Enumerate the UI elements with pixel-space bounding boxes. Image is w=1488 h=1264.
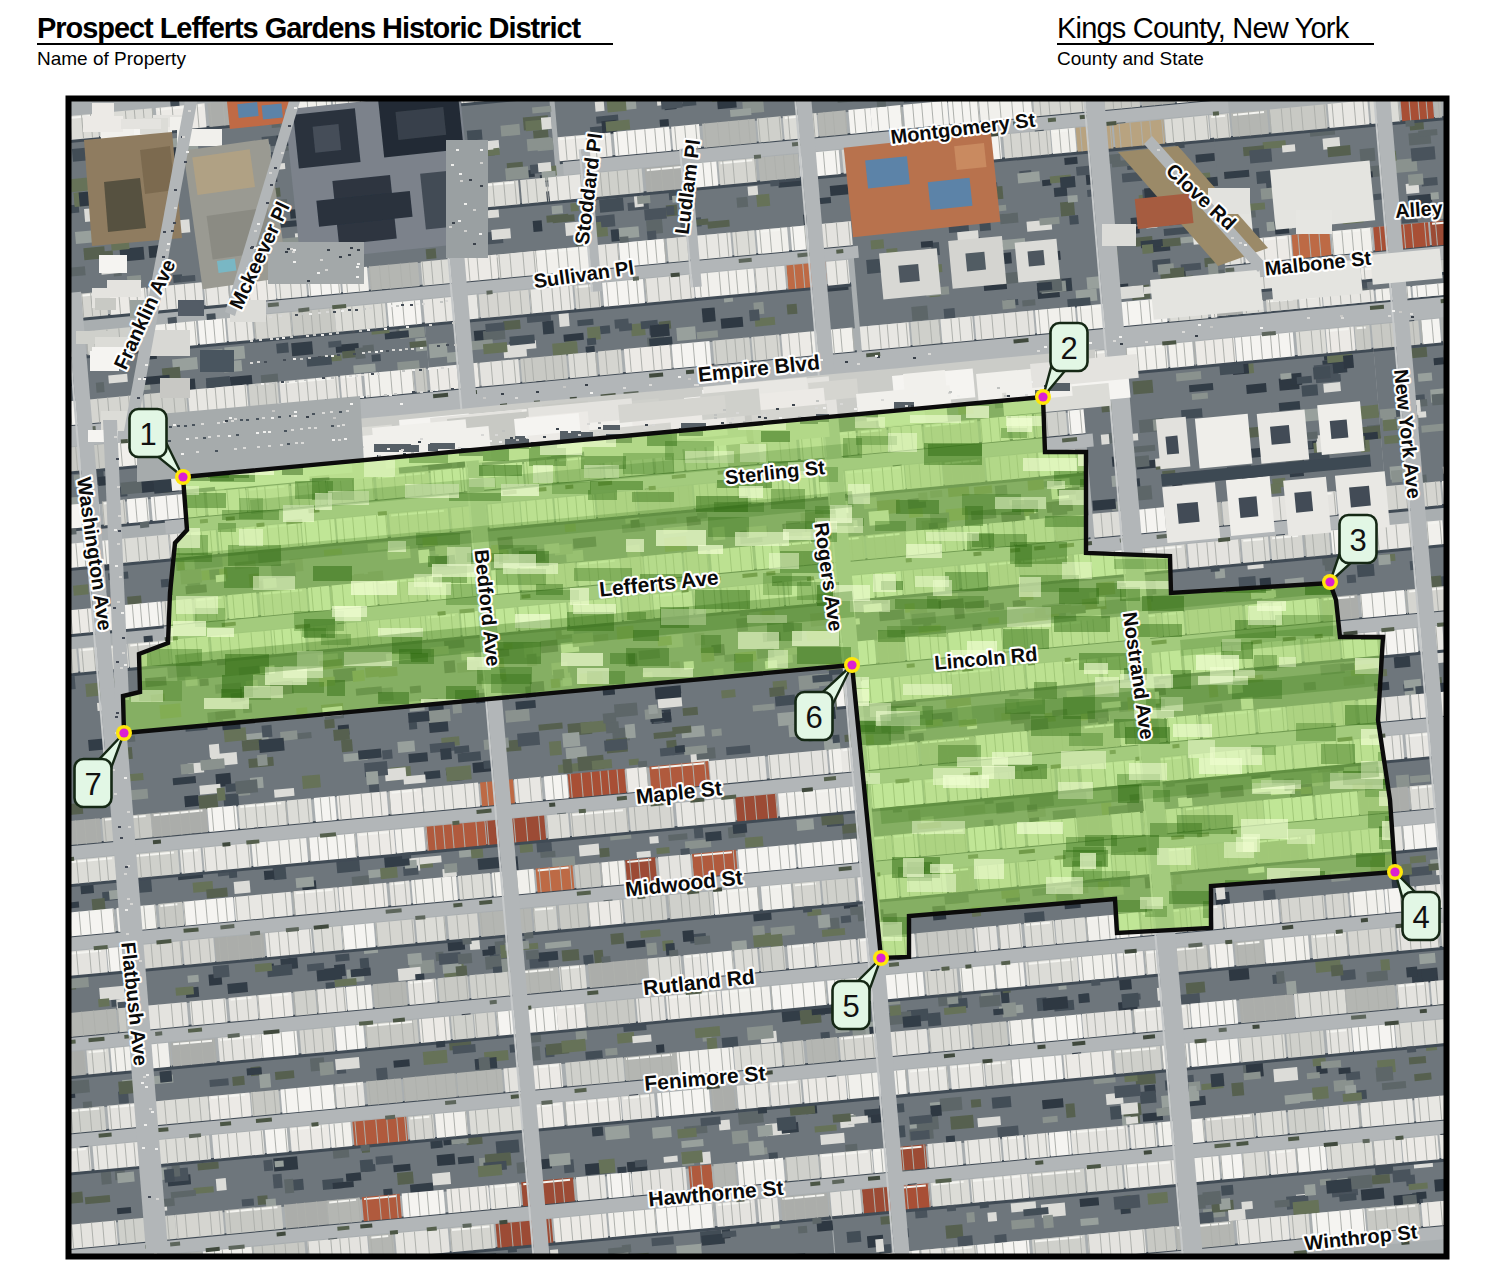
svg-text:6: 6 <box>805 700 822 735</box>
svg-text:2: 2 <box>1060 331 1077 366</box>
svg-text:1: 1 <box>139 417 156 452</box>
svg-text:Alley: Alley <box>1394 197 1444 222</box>
svg-text:3: 3 <box>1349 523 1366 558</box>
svg-text:4: 4 <box>1412 900 1429 935</box>
svg-text:5: 5 <box>842 989 859 1024</box>
svg-text:7: 7 <box>84 767 101 802</box>
